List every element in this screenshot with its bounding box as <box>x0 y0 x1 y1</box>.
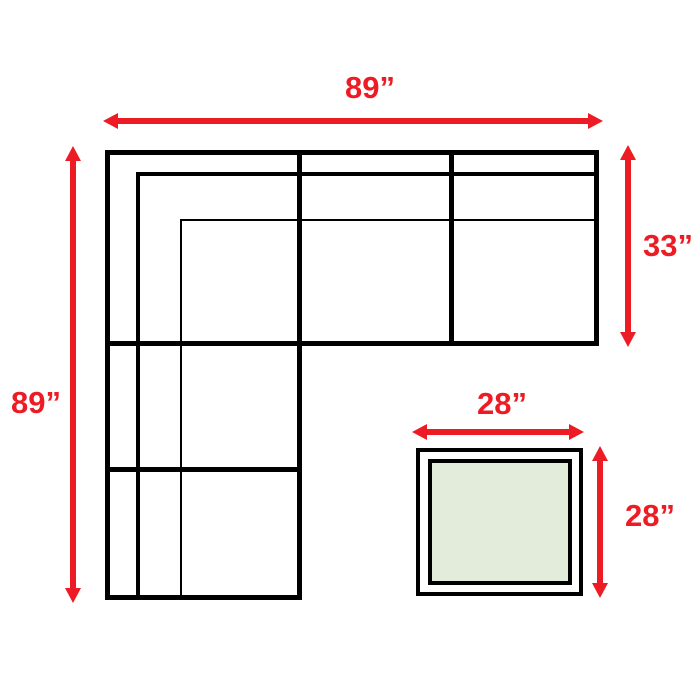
arrow-head-right-icon <box>569 424 584 440</box>
arrow-head-down-icon <box>65 588 81 603</box>
arrow-shaft <box>597 459 603 585</box>
sofa-top-edge <box>105 150 599 155</box>
arrow-shaft <box>116 118 590 124</box>
sofa-width-dimension-arrow <box>103 113 603 129</box>
arrow-shaft <box>625 158 631 334</box>
sofa-width-label: 89” <box>340 72 400 103</box>
sofa-right-edge <box>594 150 599 346</box>
sofa-bottom-edge <box>105 595 302 600</box>
arrow-shaft <box>70 159 76 590</box>
right-section-depth-label: 33” <box>638 230 698 261</box>
ottoman-width-dimension-arrow <box>412 424 584 440</box>
right-section-depth-dimension-arrow <box>620 145 636 347</box>
sofa-inner-arm-line <box>136 172 140 600</box>
sofa-depth-dimension-arrow <box>65 146 81 603</box>
sofa-left-column-right-edge <box>297 150 302 600</box>
furniture-dimension-diagram: 89” 89” 33” 28” 28” <box>0 0 700 700</box>
sofa-top-band-divider <box>449 150 454 346</box>
ottoman-depth-dimension-arrow <box>592 446 608 598</box>
ottoman-cushion <box>428 459 572 585</box>
sofa-seat-edge-vertical <box>180 219 182 600</box>
sofa-depth-label: 89” <box>6 387 66 418</box>
sofa-left-column-divider <box>105 467 302 472</box>
arrow-shaft <box>425 429 571 435</box>
arrow-head-down-icon <box>620 332 636 347</box>
ottoman-depth-label: 28” <box>620 500 680 531</box>
sofa-seat-edge-horizontal <box>180 219 599 221</box>
arrow-head-down-icon <box>592 583 608 598</box>
sofa-inner-back-line <box>136 172 599 176</box>
arrow-head-right-icon <box>588 113 603 129</box>
ottoman-width-label: 28” <box>472 388 532 419</box>
sofa-left-edge <box>105 150 110 600</box>
